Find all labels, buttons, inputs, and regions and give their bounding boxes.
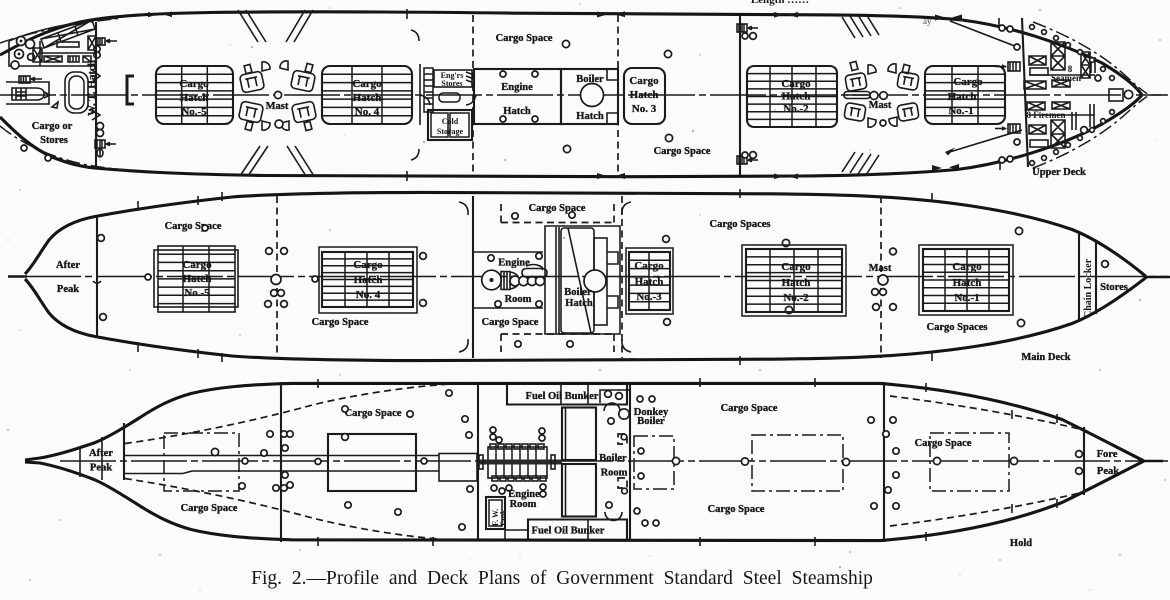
svg-text:No.-2: No.-2 bbox=[783, 292, 809, 304]
svg-text:Peak: Peak bbox=[90, 463, 112, 474]
svg-text:Engine: Engine bbox=[498, 258, 530, 269]
svg-text:After: After bbox=[89, 448, 113, 459]
svg-text:Room: Room bbox=[510, 499, 537, 510]
svg-text:Peak: Peak bbox=[57, 284, 79, 295]
svg-text:Cargo Space: Cargo Space bbox=[345, 408, 402, 419]
svg-text:Cargo: Cargo bbox=[953, 76, 983, 88]
svg-text:No.-3: No.-3 bbox=[636, 291, 662, 303]
svg-text:Cargo Space: Cargo Space bbox=[482, 317, 539, 328]
svg-text:Room: Room bbox=[505, 294, 532, 305]
svg-text:Cargo: Cargo bbox=[952, 261, 982, 273]
svg-text:W. T. Hatch: W. T. Hatch bbox=[86, 60, 98, 116]
svg-text:Mast: Mast bbox=[869, 263, 892, 274]
svg-text:Hatch: Hatch bbox=[565, 298, 593, 309]
svg-text:Mast: Mast bbox=[266, 101, 289, 112]
svg-text:Hold: Hold bbox=[1010, 538, 1032, 549]
svg-text:Cold: Cold bbox=[442, 117, 459, 126]
svg-text:Stores: Stores bbox=[441, 79, 462, 88]
svg-text:Length ……: Length …… bbox=[751, 0, 809, 6]
svg-text:Upper Deck: Upper Deck bbox=[1032, 167, 1086, 178]
svg-text:Mast: Mast bbox=[869, 100, 892, 111]
svg-text:Main Deck: Main Deck bbox=[1021, 352, 1070, 363]
svg-text:Hatch: Hatch bbox=[953, 277, 982, 289]
svg-text:Engine: Engine bbox=[501, 82, 533, 93]
svg-text:Fore: Fore bbox=[1097, 449, 1118, 460]
svg-text:Cargo Spaces: Cargo Spaces bbox=[927, 322, 988, 333]
svg-text:Cargo Space: Cargo Space bbox=[496, 33, 553, 44]
svg-text:Cargo: Cargo bbox=[781, 78, 811, 90]
svg-text:Cargo: Cargo bbox=[353, 259, 383, 271]
svg-text:Cargo: Cargo bbox=[634, 260, 664, 272]
svg-text:Hatch: Hatch bbox=[183, 273, 212, 285]
svg-text:Hatch: Hatch bbox=[630, 89, 659, 101]
svg-text:Boiler: Boiler bbox=[637, 416, 665, 427]
svg-text:Peak: Peak bbox=[1097, 466, 1119, 477]
svg-text:No. 4: No. 4 bbox=[355, 106, 380, 118]
svg-text:Cargo Spaces: Cargo Spaces bbox=[710, 219, 771, 230]
svg-text:Hatch: Hatch bbox=[354, 274, 383, 286]
svg-text:No.-1: No.-1 bbox=[948, 105, 973, 117]
svg-text:Cargo Space: Cargo Space bbox=[181, 503, 238, 514]
svg-text:Cargo Space: Cargo Space bbox=[654, 146, 711, 157]
svg-text:Cargo: Cargo bbox=[179, 78, 209, 90]
svg-text:Fuel Oil Bunker: Fuel Oil Bunker bbox=[532, 526, 605, 537]
svg-text:Storage: Storage bbox=[437, 127, 464, 136]
svg-text:Fuel Oil Bunker: Fuel Oil Bunker bbox=[526, 391, 599, 402]
svg-text:Hatch: Hatch bbox=[635, 276, 664, 288]
svg-text:Cargo Space: Cargo Space bbox=[708, 504, 765, 515]
svg-text:Hatch: Hatch bbox=[353, 92, 382, 104]
svg-text:Seamen: Seamen bbox=[1051, 73, 1081, 83]
svg-text:Boiler: Boiler bbox=[599, 453, 627, 464]
svg-text:Boiler: Boiler bbox=[564, 287, 592, 298]
svg-text:Hatch: Hatch bbox=[782, 91, 811, 103]
svg-text:Cargo Space: Cargo Space bbox=[721, 403, 778, 414]
svg-text:Cargo: Cargo bbox=[629, 75, 659, 87]
svg-text:Stores: Stores bbox=[40, 135, 68, 146]
svg-text:No.-5: No.-5 bbox=[184, 287, 210, 299]
svg-text:8 Firemen: 8 Firemen bbox=[1026, 110, 1065, 120]
svg-text:Boiler: Boiler bbox=[576, 74, 604, 85]
svg-text:Room: Room bbox=[601, 468, 628, 479]
svg-text:No.-2: No.-2 bbox=[783, 103, 809, 115]
svg-text:Hatch: Hatch bbox=[503, 106, 531, 117]
svg-text:Hatch: Hatch bbox=[782, 277, 811, 289]
svg-text:Cargo Space: Cargo Space bbox=[529, 203, 586, 214]
svg-text:Cargo: Cargo bbox=[352, 78, 382, 90]
svg-text:ay: ay bbox=[923, 16, 932, 26]
svg-text:Stores: Stores bbox=[1100, 282, 1128, 293]
svg-text:No. 4: No. 4 bbox=[356, 289, 381, 301]
svg-text:No.-1: No.-1 bbox=[954, 292, 979, 304]
svg-text:Chain Locker: Chain Locker bbox=[1083, 258, 1094, 318]
svg-text:Cargo Space: Cargo Space bbox=[915, 438, 972, 449]
svg-text:Cargo: Cargo bbox=[182, 259, 212, 271]
svg-text:Cargo Space: Cargo Space bbox=[312, 317, 369, 328]
svg-text:Cargo: Cargo bbox=[781, 261, 811, 273]
svg-text:Cargo or: Cargo or bbox=[32, 121, 73, 132]
svg-text:After: After bbox=[56, 260, 80, 271]
svg-text:Cargo Space: Cargo Space bbox=[165, 221, 222, 232]
svg-text:Hatch: Hatch bbox=[948, 91, 977, 103]
svg-text:No. 3: No. 3 bbox=[632, 103, 657, 115]
svg-text:Fig. 2.—Profile and Deck Plans: Fig. 2.—Profile and Deck Plans of Govern… bbox=[251, 568, 873, 589]
svg-text:No.-5: No.-5 bbox=[181, 106, 207, 118]
svg-text:Tank: Tank bbox=[499, 509, 508, 527]
svg-text:Hatch: Hatch bbox=[576, 111, 604, 122]
svg-text:Hatch: Hatch bbox=[180, 92, 209, 104]
